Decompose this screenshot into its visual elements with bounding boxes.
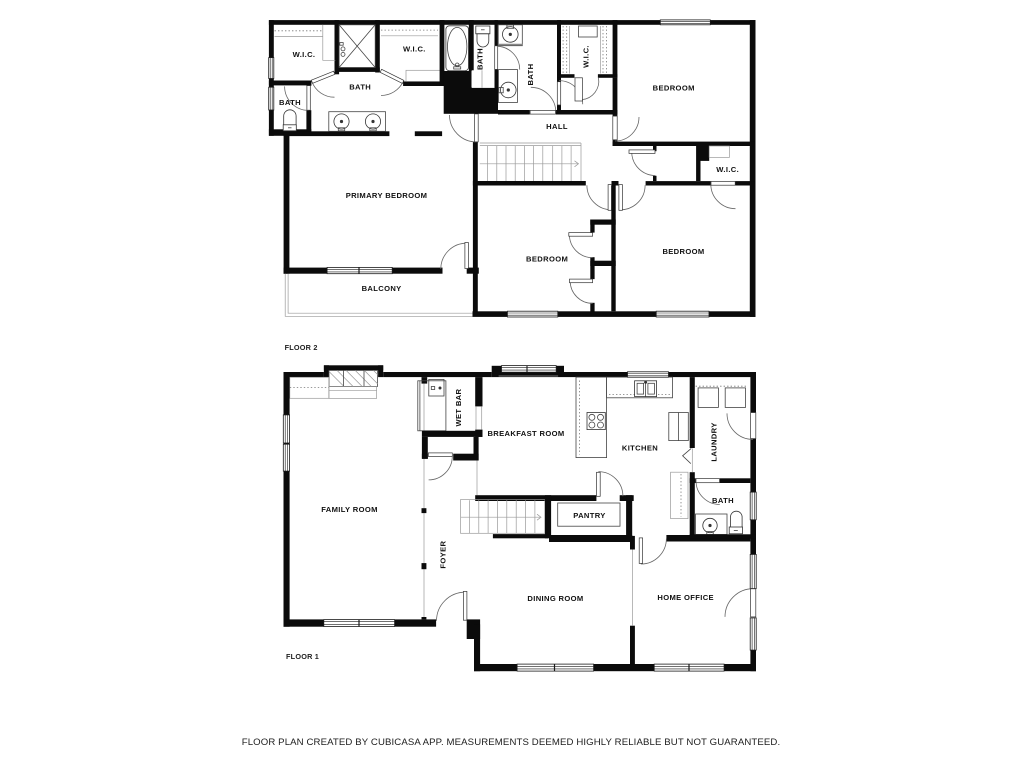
svg-text:FLOOR 1: FLOOR 1 [286,652,319,661]
svg-text:WET BAR: WET BAR [454,388,463,426]
svg-text:BEDROOM: BEDROOM [526,255,568,264]
svg-text:HOME OFFICE: HOME OFFICE [657,593,714,602]
svg-text:BALCONY: BALCONY [362,284,402,293]
svg-text:BEDROOM: BEDROOM [662,247,704,256]
svg-text:W.I.C.: W.I.C. [716,165,739,174]
svg-text:PANTRY: PANTRY [573,511,605,520]
svg-text:BREAKFAST ROOM: BREAKFAST ROOM [487,429,564,438]
svg-text:KITCHEN: KITCHEN [622,444,658,453]
svg-text:PRIMARY BEDROOM: PRIMARY BEDROOM [346,191,428,200]
svg-text:W.I.C.: W.I.C. [403,45,426,54]
svg-text:BATH: BATH [279,98,301,107]
svg-text:FLOOR 2: FLOOR 2 [285,343,318,352]
svg-text:HALL: HALL [546,122,568,131]
svg-text:FLOOR PLAN CREATED BY CUBICASA: FLOOR PLAN CREATED BY CUBICASA APP. MEAS… [242,737,781,748]
svg-text:DINING ROOM: DINING ROOM [527,594,583,603]
svg-text:BATH: BATH [476,48,485,70]
svg-text:BATH: BATH [349,83,371,92]
svg-text:FAMILY ROOM: FAMILY ROOM [321,505,378,514]
svg-text:BEDROOM: BEDROOM [653,84,695,93]
svg-text:W.I.C.: W.I.C. [293,50,316,59]
svg-text:FOYER: FOYER [439,540,448,568]
svg-text:LAUNDRY: LAUNDRY [710,422,719,461]
svg-text:W.I.C.: W.I.C. [582,45,591,68]
svg-text:BATH: BATH [526,64,535,86]
svg-text:BATH: BATH [712,496,734,505]
